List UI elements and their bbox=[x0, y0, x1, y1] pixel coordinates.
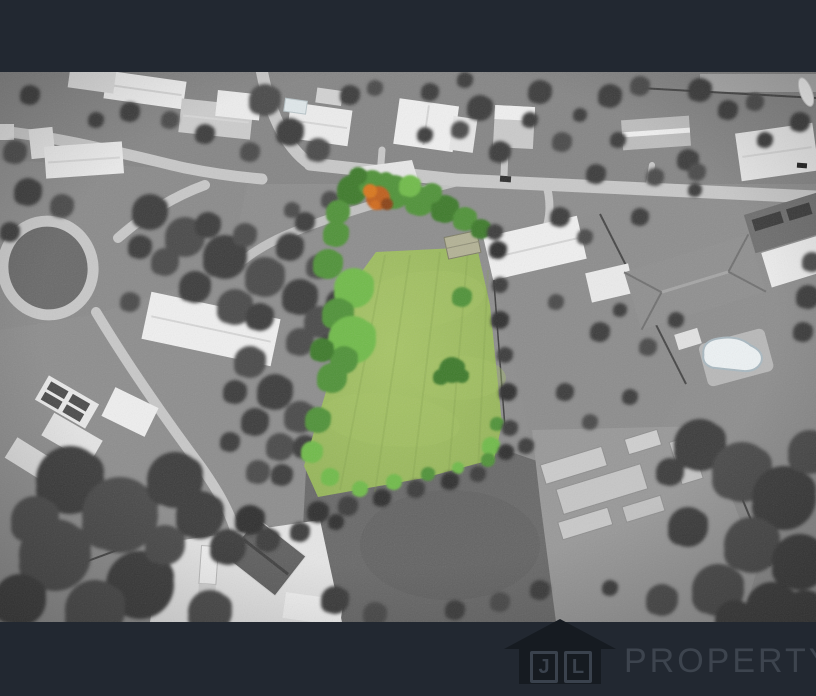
letterbox-top bbox=[0, 0, 816, 72]
logo-initials: J L bbox=[519, 651, 603, 681]
logo-initial-j: J bbox=[530, 651, 558, 683]
logo-wordmark: PROPERTY bbox=[624, 644, 816, 678]
jl-property-logo: J L PROPERTY bbox=[502, 618, 816, 686]
listing-photo-frame: J L PROPERTY bbox=[0, 0, 816, 696]
logo-initial-l: L bbox=[564, 651, 592, 683]
letterbox-bottom: J L PROPERTY bbox=[0, 622, 816, 696]
aerial-photo bbox=[0, 72, 816, 622]
aerial-scene bbox=[0, 72, 816, 622]
vignette bbox=[0, 72, 816, 622]
logo-house-icon: J L bbox=[502, 618, 618, 686]
